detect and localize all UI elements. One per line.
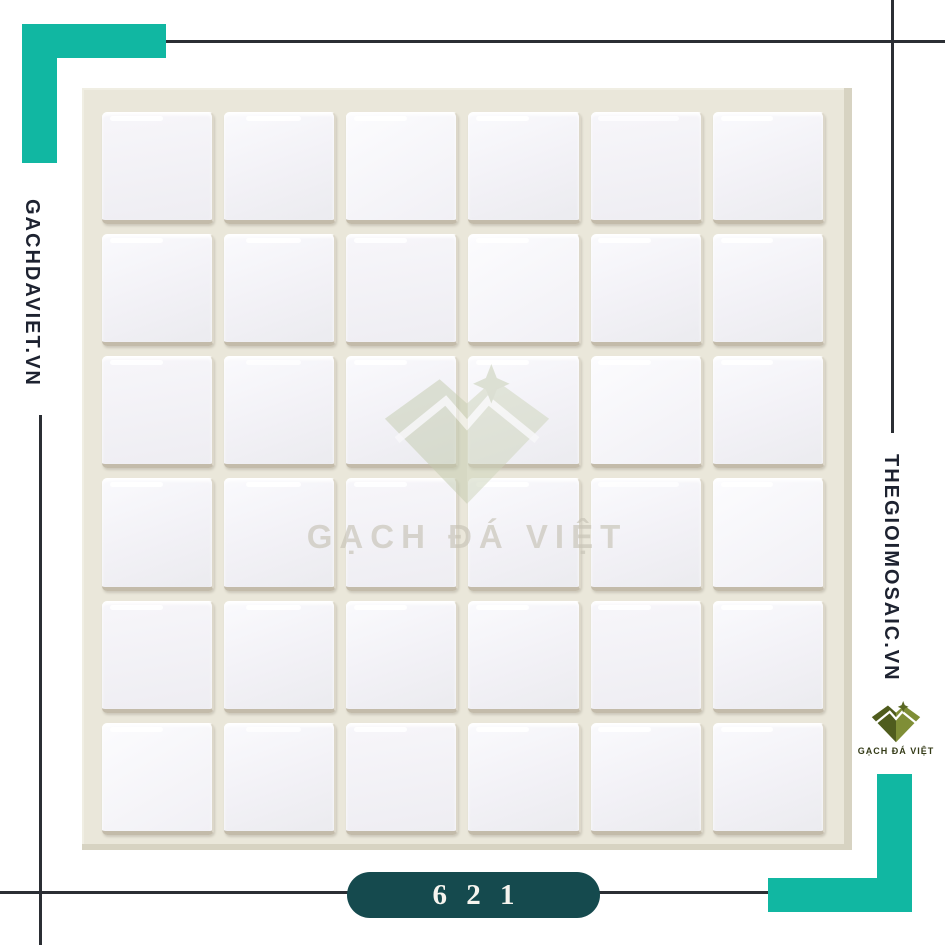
mosaic-tile [346,601,458,713]
mosaic-tile [346,723,458,835]
mosaic-tile [591,356,703,468]
mosaic-tile [713,601,825,713]
mosaic-tile [713,723,825,835]
mosaic-tile [102,723,214,835]
mosaic-tile [468,601,580,713]
mosaic-tile [102,234,214,346]
left-rule-line [39,415,42,945]
mosaic-tile [713,234,825,346]
mosaic-tile [102,601,214,713]
right-site-watermark: THEGIOIMOSAIC.VN [879,454,902,682]
mosaic-tile [346,478,458,590]
mosaic-tile [713,478,825,590]
mosaic-tile [591,723,703,835]
gach-da-viet-logo: GẠCH ĐÁ VIỆT [851,701,941,756]
mosaic-tile [102,112,214,224]
mosaic-tile [591,478,703,590]
product-photo: GẠCH ĐÁ VIỆT [82,88,852,850]
mosaic-tile [102,356,214,468]
mosaic-tile [224,478,336,590]
mosaic-tile [468,356,580,468]
mosaic-tile [346,356,458,468]
mosaic-tile [224,723,336,835]
mosaic-tile [224,356,336,468]
mosaic-tile [591,234,703,346]
mosaic-tile [468,234,580,346]
mosaic-tile [468,112,580,224]
mosaic-tile [468,723,580,835]
product-code-badge: 6 2 1 [347,872,600,918]
mosaic-tile [224,112,336,224]
mosaic-tile [468,478,580,590]
promo-canvas: GACHDAVIET.VN THEGIOIMOSAIC.VN GẠCH ĐÁ V… [0,0,945,945]
mosaic-tile [346,112,458,224]
left-site-watermark: GACHDAVIET.VN [20,199,43,387]
top-rule-line [166,40,945,43]
mosaic-tile [224,601,336,713]
mosaic-tile [591,601,703,713]
mosaic-tile [224,234,336,346]
product-code: 6 2 1 [427,879,521,912]
mosaic-tile [591,112,703,224]
mosaic-tile [713,356,825,468]
tile-grid [102,112,825,835]
mosaic-tile [102,478,214,590]
gach-da-viet-logo-icon [864,701,928,744]
mosaic-tile [346,234,458,346]
logo-text: GẠCH ĐÁ VIỆT [851,746,941,756]
mosaic-tile [713,112,825,224]
right-rule-line [891,0,894,433]
